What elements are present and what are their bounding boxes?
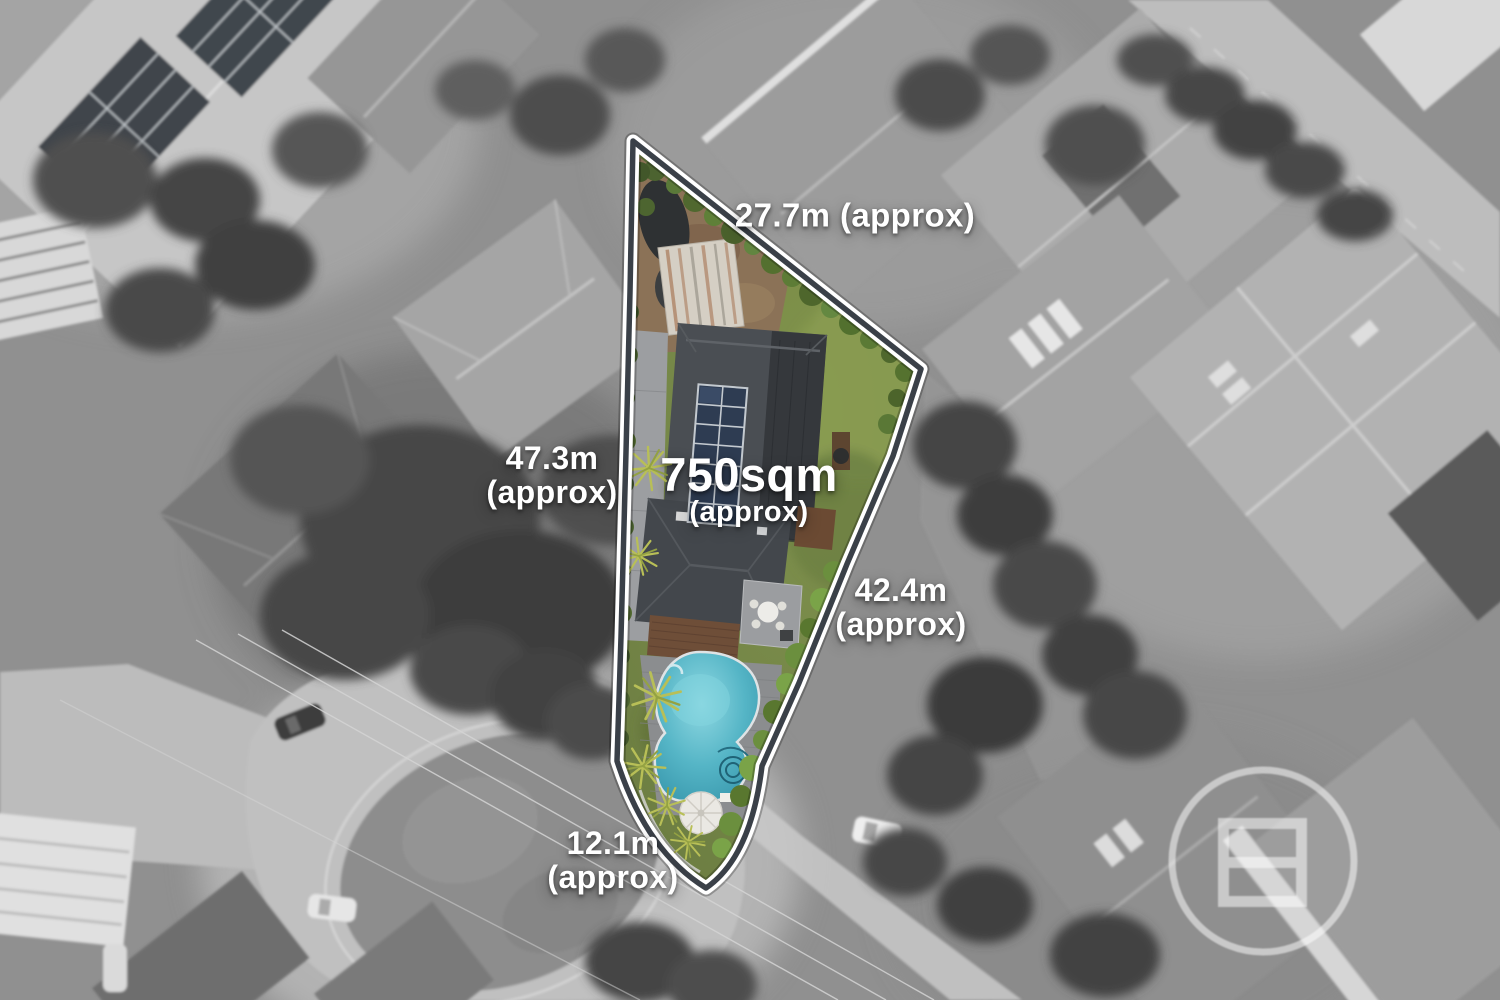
dimension-qualifier: (approx) [486, 476, 617, 510]
dimension-qualifier: (approx) [835, 608, 966, 642]
outdoor-table [758, 602, 779, 623]
shed-roof [658, 239, 744, 336]
dimension-value: 47.3m [486, 442, 617, 476]
area-value: 750sqm [660, 451, 837, 498]
dimension-value: 27.7m (approx) [735, 199, 975, 234]
swimming-pool [655, 652, 759, 801]
dimension-label-top: 27.7m (approx) [735, 199, 975, 234]
area-label: 750sqm (approx) [660, 451, 837, 527]
property-aerial-photo: 27.7m (approx) 47.3m (approx) 750sqm (ap… [0, 0, 1500, 1000]
dimension-label-front: 12.1m (approx) [547, 827, 678, 895]
dimension-label-right: 42.4m (approx) [835, 574, 966, 642]
dimension-qualifier: (approx) [547, 861, 678, 895]
dimension-label-left: 47.3m (approx) [486, 442, 617, 510]
paved-patio [740, 580, 802, 649]
area-qualifier: (approx) [660, 498, 837, 527]
bbq-grill [780, 630, 793, 641]
dimension-value: 42.4m [835, 574, 966, 608]
dimension-value: 12.1m [547, 827, 678, 861]
